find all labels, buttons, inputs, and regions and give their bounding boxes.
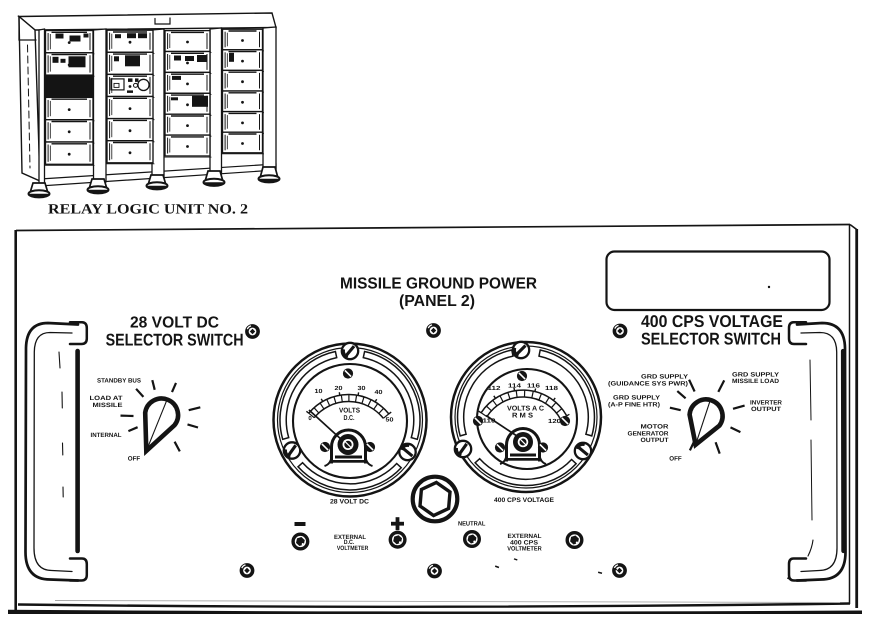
svg-text:RELAY LOGIC UNIT NO. 2: RELAY LOGIC UNIT NO. 2	[48, 202, 248, 218]
svg-text:OFF: OFF	[669, 456, 682, 463]
svg-text:114: 114	[508, 383, 522, 390]
svg-text:116: 116	[527, 383, 541, 390]
svg-text:OFF: OFF	[128, 456, 141, 463]
svg-text:VOLTS: VOLTS	[339, 407, 360, 414]
svg-text:(GUIDANCE SYS PWR): (GUIDANCE SYS PWR)	[608, 381, 688, 388]
svg-text:NEUTRAL: NEUTRAL	[458, 520, 486, 527]
svg-text:28 VOLT DC: 28 VOLT DC	[130, 315, 219, 332]
svg-text:OUTPUT: OUTPUT	[641, 437, 669, 444]
svg-text:GRD SUPPLY: GRD SUPPLY	[641, 374, 689, 381]
svg-text:50: 50	[386, 417, 395, 424]
svg-text:(PANEL 2): (PANEL 2)	[399, 293, 475, 310]
svg-text:30: 30	[358, 385, 367, 392]
svg-text:400 CPS VOLTAGE: 400 CPS VOLTAGE	[641, 312, 783, 331]
svg-text:SELECTOR SWITCH: SELECTOR SWITCH	[106, 331, 244, 350]
svg-text:LOAD AT: LOAD AT	[90, 395, 123, 402]
svg-text:400 CPS VOLTAGE: 400 CPS VOLTAGE	[494, 497, 555, 504]
svg-text:10: 10	[315, 388, 324, 395]
svg-text:VOLTMETER: VOLTMETER	[507, 546, 542, 553]
svg-text:INTERNAL: INTERNAL	[91, 432, 122, 439]
svg-text:28 VOLT DC: 28 VOLT DC	[330, 498, 369, 505]
svg-text:R M S: R M S	[512, 412, 533, 419]
svg-text:STANDBY BUS: STANDBY BUS	[97, 378, 141, 385]
svg-text:VOLTMETER: VOLTMETER	[337, 545, 369, 552]
svg-text:(A-P FINE HTR): (A-P FINE HTR)	[608, 402, 660, 409]
svg-text:120: 120	[548, 418, 562, 425]
svg-text:20: 20	[335, 385, 344, 392]
svg-text:118: 118	[545, 385, 559, 392]
svg-text:SELECTOR SWITCH: SELECTOR SWITCH	[641, 330, 781, 349]
svg-text:40: 40	[375, 389, 384, 396]
svg-text:112: 112	[488, 385, 502, 392]
svg-text:MISSILE GROUND POWER: MISSILE GROUND POWER	[340, 276, 537, 293]
svg-text:GRD SUPPLY: GRD SUPPLY	[613, 395, 661, 402]
svg-text:D.C.: D.C.	[344, 415, 355, 422]
svg-text:MISSILE: MISSILE	[93, 402, 123, 409]
svg-text:MISSILE LOAD: MISSILE LOAD	[732, 378, 780, 385]
svg-text:OUTPUT: OUTPUT	[751, 406, 781, 413]
svg-text:MOTOR: MOTOR	[641, 424, 670, 431]
